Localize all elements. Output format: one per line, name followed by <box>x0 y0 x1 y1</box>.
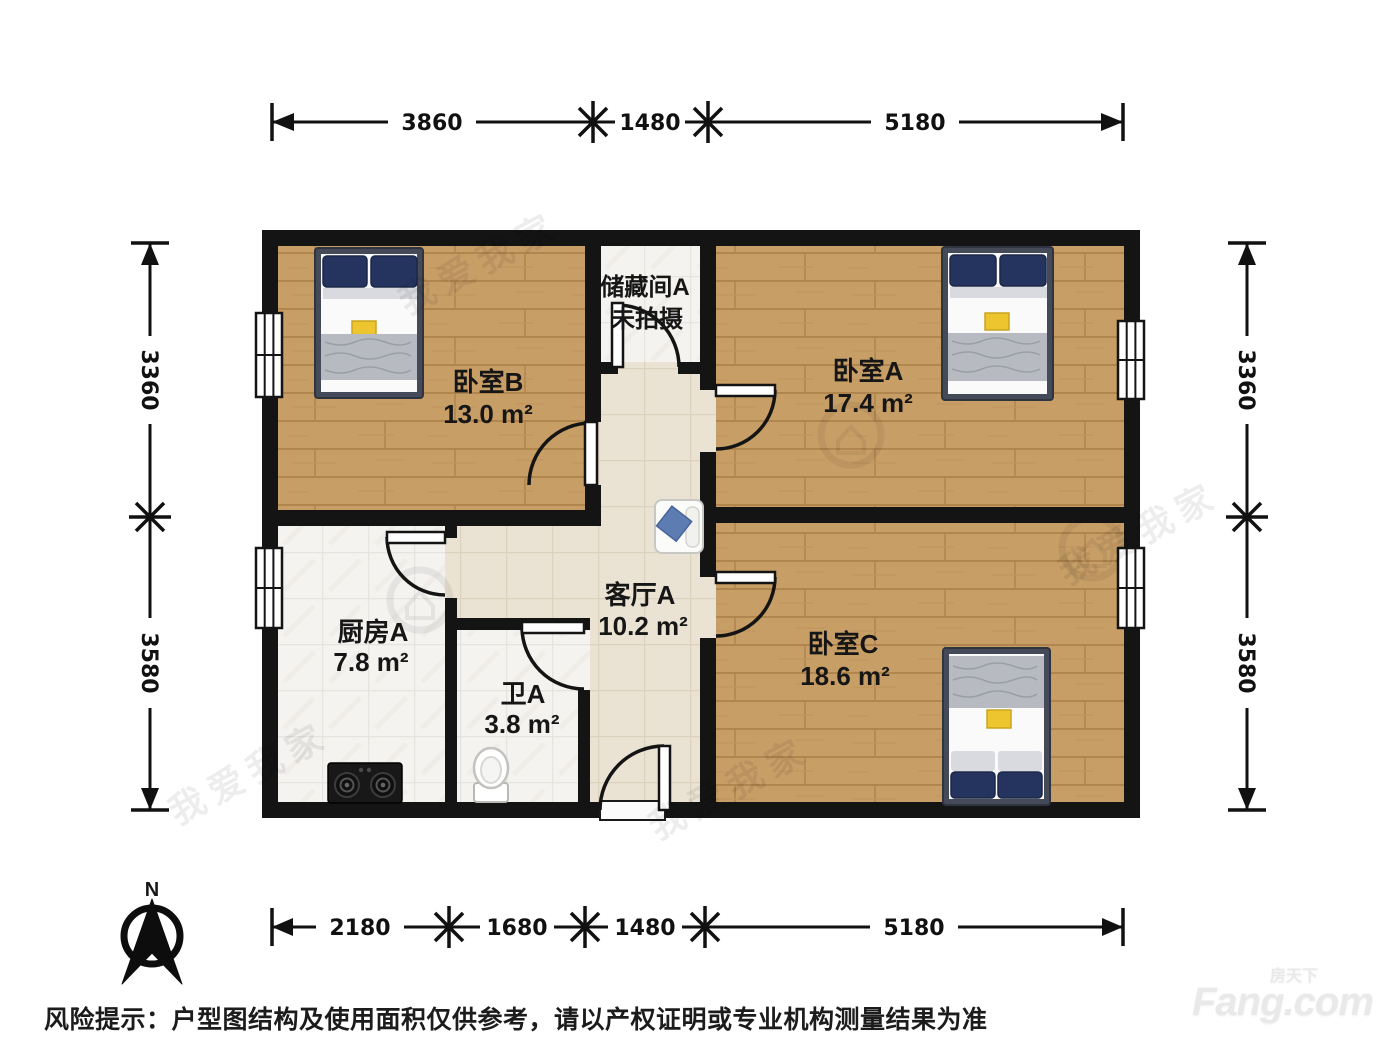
bed-bedroom-c <box>943 648 1050 805</box>
dim-bottom-4: 5180 <box>883 916 944 941</box>
toilet <box>474 748 508 802</box>
floorplan-canvas: 卧室B 13.0 m² 卧室A 17.4 m² 卧室C 18.6 m² 厨房A … <box>0 0 1400 1050</box>
wall-kitchen-east-top <box>445 526 457 538</box>
room-area-kitchen: 7.8 m² <box>333 647 408 677</box>
wall-bedroomB-east-upper <box>585 246 601 422</box>
dim-left-1: 3360 <box>136 349 161 410</box>
wall-bedroomB-east-lower <box>585 485 601 510</box>
dim-top-3: 5180 <box>884 111 945 136</box>
dim-bottom-2: 1680 <box>486 916 547 941</box>
wall-bedroomB-south <box>278 510 601 526</box>
room-label-bedroom-b: 卧室B <box>453 367 524 397</box>
window-bedroomB-west <box>256 313 282 397</box>
window-kitchen-west <box>256 548 282 628</box>
floor-bedroom-a <box>716 246 1124 507</box>
wall-bedroomA-bedroomC <box>716 507 1124 523</box>
armchair-living <box>655 500 703 553</box>
room-area-living: 10.2 m² <box>598 611 688 641</box>
dim-bottom-1: 2180 <box>329 916 390 941</box>
dim-bottom-3: 1480 <box>614 916 675 941</box>
room-area-bedroom-c: 18.6 m² <box>800 661 890 691</box>
wall-outer-bottom-west <box>262 802 600 818</box>
room-label-storage: 储藏间A <box>600 273 689 301</box>
room-label-kitchen: 厨房A <box>338 617 409 647</box>
wall-outer-top <box>262 230 1140 246</box>
room-area-bedroom-b: 13.0 m² <box>443 399 533 429</box>
room-area-bathroom: 3.8 m² <box>484 709 559 739</box>
dim-right-1: 3360 <box>1233 349 1258 410</box>
dim-top-2: 1480 <box>619 111 680 136</box>
north-label: N <box>145 879 159 901</box>
wall-hall-east-upper <box>700 246 716 390</box>
dim-top-1: 3860 <box>401 111 462 136</box>
room-label-living: 客厅A <box>605 580 676 610</box>
dimension-top: 3860 1480 5180 <box>272 101 1123 143</box>
room-label-bathroom: 卫A <box>501 679 546 709</box>
north-compass: N <box>122 879 182 984</box>
room-label-bedroom-c: 卧室C <box>808 629 879 659</box>
floor-living-west <box>445 518 593 630</box>
stove <box>328 763 402 803</box>
window-bedroomA-east <box>1118 321 1144 399</box>
dimension-left: 3360 3580 <box>129 243 171 810</box>
room-note-storage: 未拍摄 <box>611 306 684 333</box>
dimension-right: 3360 3580 <box>1226 243 1268 810</box>
room-area-bedroom-a: 17.4 m² <box>823 388 913 418</box>
risk-disclaimer: 风险提示：户型图结构及使用面积仅供参考，请以产权证明或专业机构测量结果为准 <box>44 1000 1044 1036</box>
dim-left-2: 3580 <box>136 632 161 693</box>
room-label-bedroom-a: 卧室A <box>833 356 904 386</box>
compass-arrow-icon <box>122 899 182 984</box>
wall-bathroom-east <box>578 690 590 802</box>
dim-right-2: 3580 <box>1233 632 1258 693</box>
dimension-bottom: 2180 1680 1480 5180 <box>272 906 1123 948</box>
fang-watermark-en: Fang.com <box>1192 984 1392 1020</box>
bed-bedroom-a <box>942 247 1053 400</box>
fang-watermark: 房天下 Fang.com <box>1192 970 1392 1020</box>
